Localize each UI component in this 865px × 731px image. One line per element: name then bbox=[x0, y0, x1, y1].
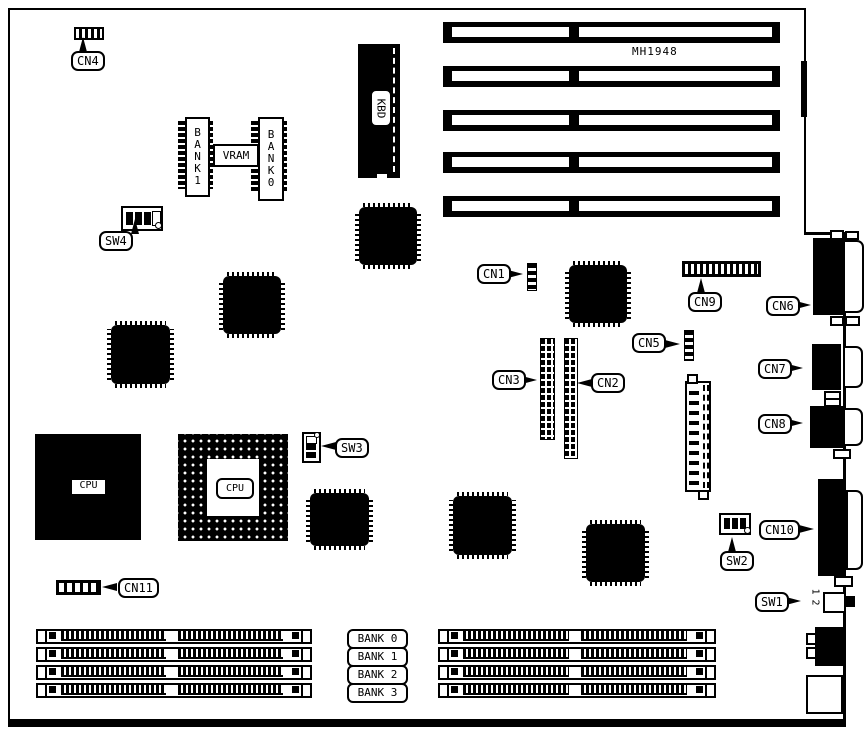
bank0-label: BANK 0 bbox=[347, 629, 408, 649]
qfp-chip-2 bbox=[219, 272, 285, 338]
cn4-callout: CN4 bbox=[71, 51, 105, 71]
cn9-callout: CN9 bbox=[688, 292, 722, 312]
audio-jack-nub bbox=[806, 633, 817, 645]
cn2-connector bbox=[564, 338, 578, 459]
kbd-chip-dash bbox=[393, 48, 395, 172]
bank0-body: BANK0 bbox=[258, 117, 284, 201]
board-model-text: MH1948 bbox=[632, 45, 678, 58]
cn5-connector bbox=[684, 330, 694, 361]
mount-tab bbox=[830, 316, 844, 326]
bank1-text: BANK1 bbox=[193, 127, 202, 187]
vram-text: VRAM bbox=[223, 149, 250, 162]
cpu-pga-socket: CPU bbox=[178, 434, 288, 541]
cn10-callout: CN10 bbox=[759, 520, 800, 540]
cn1-connector bbox=[527, 263, 537, 291]
bank1-body: BANK1 bbox=[185, 117, 210, 197]
simm-slot bbox=[36, 665, 312, 680]
simm-slot bbox=[36, 629, 312, 644]
bank2-label: BANK 2 bbox=[347, 665, 408, 685]
feature-connector bbox=[685, 381, 711, 492]
cn8-port bbox=[843, 408, 863, 446]
mount-tab bbox=[824, 398, 841, 407]
simm-slot bbox=[36, 647, 312, 662]
mount-tab bbox=[845, 231, 859, 240]
expansion-slot-5 bbox=[443, 196, 780, 217]
cpu-socket-label: CPU bbox=[216, 478, 254, 499]
kbd-label-text: KBD bbox=[375, 98, 388, 118]
sw1-callout: SW1 bbox=[755, 592, 789, 612]
cn6-connector-body bbox=[813, 238, 843, 315]
cn7-connector-body bbox=[812, 344, 841, 390]
expansion-slot-2 bbox=[443, 66, 780, 87]
cpu-socket-text: CPU bbox=[226, 482, 244, 495]
bank1-label: BANK 1 bbox=[347, 647, 408, 667]
cn11-connector bbox=[56, 580, 101, 595]
qfp-chip-3 bbox=[107, 321, 174, 388]
vram-box: VRAM bbox=[213, 144, 259, 167]
cn7-callout: CN7 bbox=[758, 359, 792, 379]
feature-connector-tab-bottom bbox=[698, 490, 709, 500]
cn9-connector bbox=[682, 261, 761, 277]
cn6-port bbox=[843, 240, 864, 313]
sw2-callout: SW2 bbox=[720, 551, 754, 571]
board-edge-bottom bbox=[8, 719, 846, 727]
board-edge-top bbox=[8, 8, 806, 10]
feature-connector-tab-top bbox=[687, 374, 698, 384]
bottom-right-port bbox=[806, 675, 843, 714]
sw1-slider bbox=[844, 596, 855, 607]
sw1-switch bbox=[823, 592, 846, 613]
bank1-pins-left bbox=[178, 121, 185, 189]
sw4-callout: SW4 bbox=[99, 231, 133, 251]
cn3-callout: CN3 bbox=[492, 370, 526, 390]
cn3-connector bbox=[540, 338, 555, 440]
cn2-callout: CN2 bbox=[591, 373, 625, 393]
cpu-main-text: CPU bbox=[79, 480, 97, 491]
sw2-switch bbox=[719, 513, 751, 535]
board-edge-left bbox=[8, 8, 10, 724]
vram-bank1-module: BANK1 bbox=[178, 117, 213, 193]
motherboard-diagram: MH1948 KBD CN4 BANK1 BANK0 VRAM SW bbox=[0, 0, 865, 731]
simm-slot bbox=[438, 629, 716, 644]
cpu-main-chip: CPU bbox=[35, 434, 141, 540]
cn10-port bbox=[846, 490, 863, 570]
kbd-label: KBD bbox=[370, 89, 392, 127]
mount-tab bbox=[845, 316, 860, 326]
board-edge-connector-bar bbox=[801, 61, 807, 117]
sw3-switch bbox=[302, 432, 321, 463]
expansion-slot-3 bbox=[443, 110, 780, 131]
simm-slot bbox=[36, 683, 312, 698]
audio-jack-block bbox=[815, 627, 845, 666]
sw1-position-1: 1 bbox=[809, 589, 821, 600]
cn8-callout: CN8 bbox=[758, 414, 792, 434]
bank3-label: BANK 3 bbox=[347, 683, 408, 703]
qfp-chip-7 bbox=[565, 261, 631, 327]
cn10-connector-body bbox=[818, 479, 846, 576]
sw1-position-2: 2 bbox=[809, 600, 821, 611]
qfp-chip-5 bbox=[449, 492, 516, 559]
sw4-switch bbox=[121, 206, 163, 231]
qfp-chip-6 bbox=[582, 520, 649, 586]
sw3-callout: SW3 bbox=[335, 438, 369, 458]
cn8-connector-body bbox=[810, 406, 843, 448]
cn5-callout: CN5 bbox=[632, 333, 666, 353]
mount-tab bbox=[830, 230, 844, 240]
kbd-chip: KBD bbox=[358, 44, 400, 178]
mount-tab bbox=[834, 576, 853, 587]
simm-slot bbox=[438, 683, 716, 698]
cn6-callout: CN6 bbox=[766, 296, 800, 316]
simm-slot bbox=[438, 647, 716, 662]
cn7-port bbox=[843, 346, 863, 388]
expansion-slot-4 bbox=[443, 152, 780, 173]
kbd-chip-notch bbox=[377, 174, 387, 178]
audio-jack-nub bbox=[806, 647, 817, 659]
cpu-main-label: CPU bbox=[71, 479, 106, 495]
board-edge-right-upper bbox=[804, 8, 806, 234]
expansion-slot-1 bbox=[443, 22, 780, 43]
mount-tab bbox=[833, 449, 851, 459]
qfp-chip-4 bbox=[306, 489, 373, 550]
qfp-chip-1 bbox=[355, 203, 421, 269]
bank0-text: BANK0 bbox=[267, 129, 276, 189]
cn11-callout: CN11 bbox=[118, 578, 159, 598]
cn1-callout: CN1 bbox=[477, 264, 511, 284]
simm-slot bbox=[438, 665, 716, 680]
